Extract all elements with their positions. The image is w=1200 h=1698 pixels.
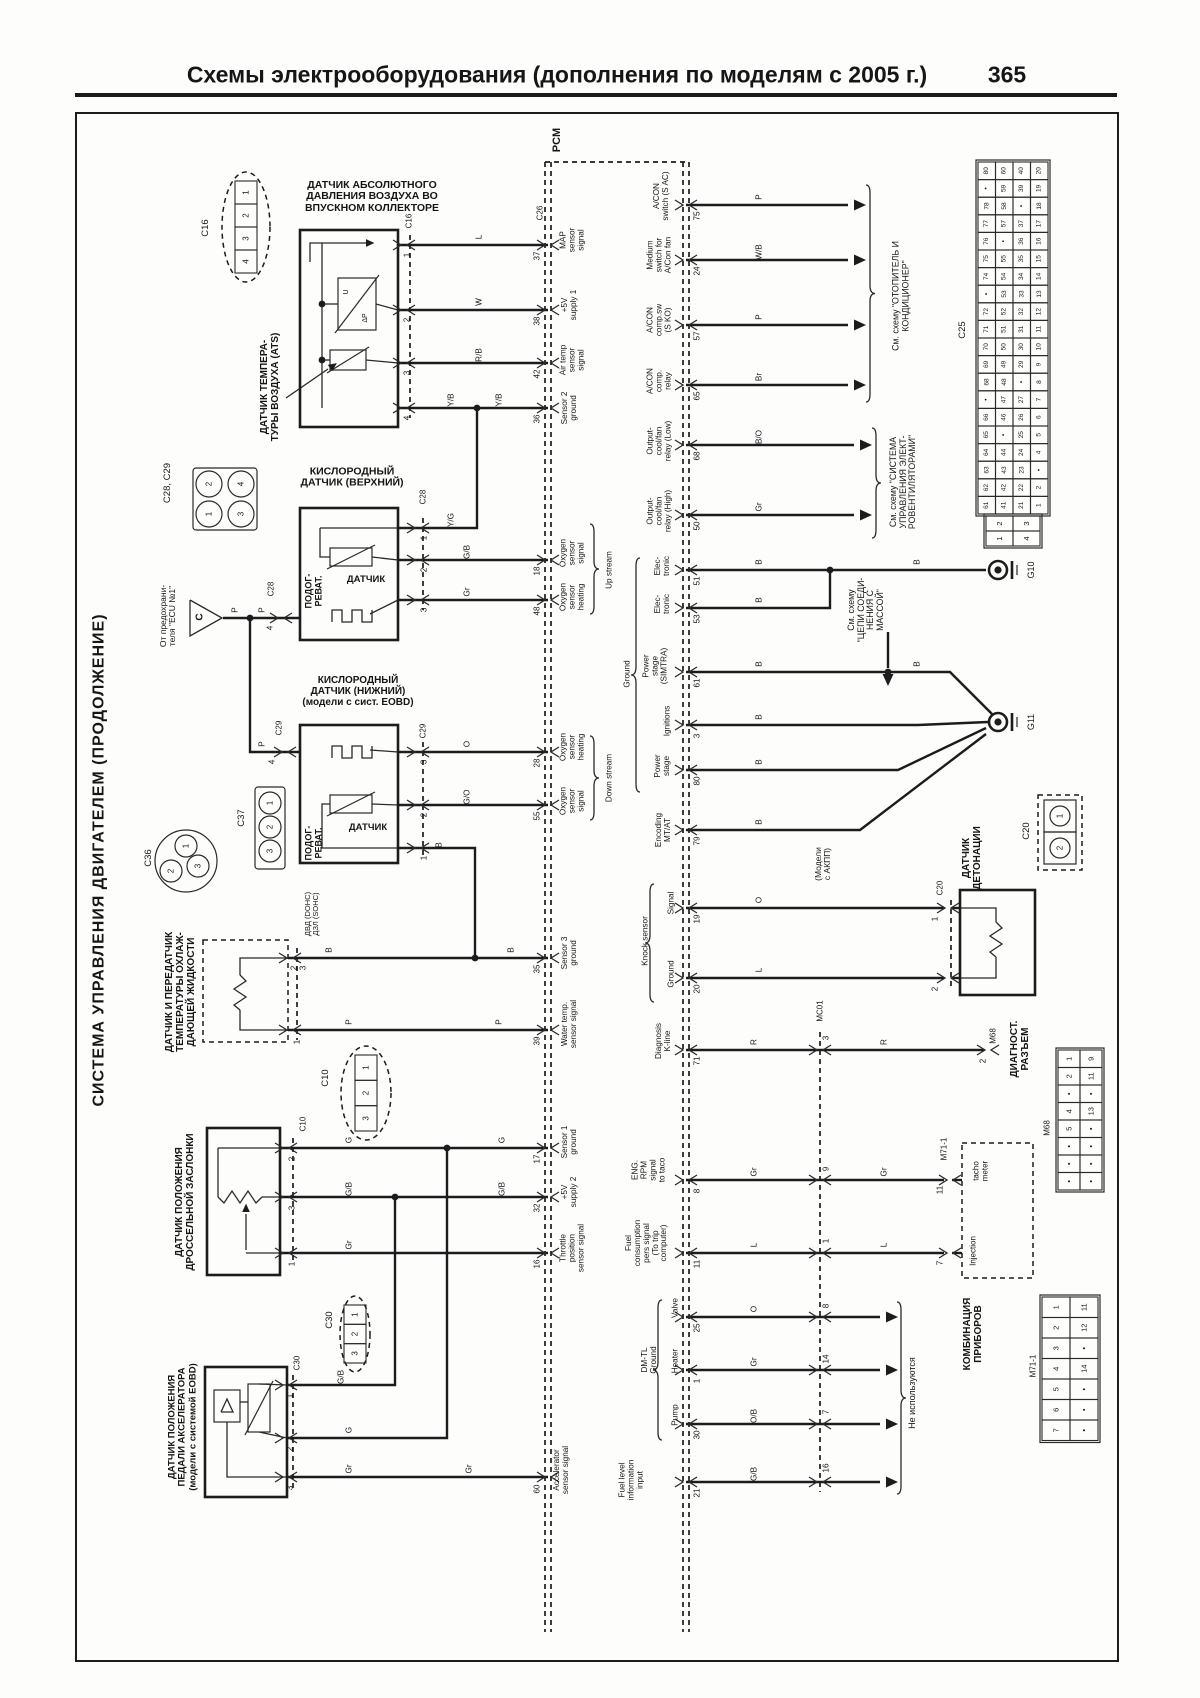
text-label: Water temp. sensor signal <box>561 1000 579 1048</box>
text-label: Gr <box>881 1167 890 1176</box>
c25-grid-pin: 78 <box>983 202 990 210</box>
flow-arrow <box>860 440 872 451</box>
wire-junction <box>474 405 481 412</box>
connector-chevron <box>551 1192 559 1202</box>
text-label: КИСЛОРОДНЫЙ ДАТЧИК (НИЖНИЙ) (модели с си… <box>302 676 413 708</box>
text-label: C16 <box>406 214 415 229</box>
text-label: 1 <box>287 1394 296 1399</box>
text-label: 8 <box>823 1304 832 1309</box>
c25-grid-pin: • <box>1001 433 1008 436</box>
text-label: W <box>476 298 485 306</box>
c25-grid-pin: 75 <box>983 255 990 263</box>
m71-1-grid-pin: 14 <box>1080 1365 1089 1373</box>
m68-grid-pin: • <box>1087 1180 1096 1183</box>
text-label: 25 <box>694 1323 703 1332</box>
text-label: L <box>881 1243 890 1248</box>
connector-chevron <box>551 1143 559 1153</box>
flow-arrow <box>854 200 866 211</box>
c36-connector-pin: 3 <box>194 863 203 868</box>
component-internal <box>240 1010 286 1030</box>
text-label: КОМБИНАЦИЯ ПРИБОРОВ <box>963 1298 985 1371</box>
text-label: 2 <box>980 1059 989 1064</box>
text-label: ДАТЧИК ТЕМПЕРА- ТУРЫ ВОЗДУХА (ATS) <box>260 333 282 442</box>
connector-chevron <box>675 1477 683 1487</box>
m68-grid-pin: • <box>1087 1162 1096 1165</box>
text-label: A/CON comp.sw (S KO) <box>647 304 674 336</box>
text-label: 3 <box>404 371 413 376</box>
text-label: 30 <box>694 1430 703 1439</box>
text-label: 4 <box>404 416 413 421</box>
text-label: 37 <box>534 252 543 261</box>
text-label: (Модели с АКПП) <box>814 847 832 881</box>
m71-1-grid-pin: 12 <box>1080 1324 1089 1332</box>
inner-part-slash <box>245 1381 273 1435</box>
component-internal <box>227 1422 287 1477</box>
wire-junction <box>885 669 892 676</box>
text-label: tacho meter <box>972 1161 989 1181</box>
c25-grid-pin: 35 <box>1018 255 1025 263</box>
wire-junction <box>247 615 254 622</box>
c25-grid-pin: 54 <box>1001 272 1008 280</box>
ground-icon-dot <box>994 566 1001 573</box>
text-label: R <box>751 1039 760 1045</box>
text-label: Gr <box>346 1240 355 1249</box>
c25-grid-pin: 8 <box>1036 380 1043 384</box>
text-label: Oxygen sensor heating <box>560 583 587 611</box>
c25-grid-pin: 29 <box>1018 360 1025 368</box>
flow-arrow <box>886 1365 898 1376</box>
m71-1-grid-pin: 6 <box>1052 1408 1061 1412</box>
c20-connector-pin: 2 <box>1056 845 1065 850</box>
text-label: 55 <box>534 812 543 821</box>
text-label: 38 <box>534 317 543 326</box>
text-label: Y/G <box>448 513 457 527</box>
text-label: G/B <box>338 1370 347 1384</box>
connector-chevron <box>675 440 683 450</box>
text-label: P <box>259 607 268 612</box>
text-label: Up stream <box>606 551 615 589</box>
text-label: 3 <box>421 608 430 613</box>
c25-grid-pin: 49 <box>1001 360 1008 368</box>
text-label: Sensor 3 ground <box>561 937 579 970</box>
c25-grid-pin: 15 <box>1036 255 1043 263</box>
m71-1-grid-pin: • <box>1080 1347 1089 1350</box>
text-label: 1 <box>294 1040 303 1045</box>
text-label: B <box>756 759 765 764</box>
wire <box>686 722 988 725</box>
m71-1-grid-pin: 11 <box>1080 1303 1089 1311</box>
c25-grid-pin: 24 <box>1018 448 1025 456</box>
flow-arrow <box>886 1419 898 1430</box>
connector-chevron <box>675 720 683 730</box>
connector-chevron <box>675 603 683 613</box>
text-label: B <box>756 819 765 824</box>
text-label: Gr <box>346 1464 355 1473</box>
text-label: 61 <box>694 678 703 687</box>
c25-grid-pin: 60 <box>1001 167 1008 175</box>
component-internal <box>332 746 372 758</box>
component-internal <box>310 243 366 262</box>
text-label: 3 <box>289 1206 298 1211</box>
c30-connector-pin: 3 <box>351 1351 360 1356</box>
c28-c29-connector-pin: 1 <box>205 511 214 516</box>
group-brace <box>866 185 875 402</box>
m71-1-grid-pin: • <box>1080 1408 1089 1411</box>
text-label: C28 <box>268 582 277 597</box>
text-label: Air temp sensor signal <box>560 345 587 375</box>
text-label: Pump <box>672 1404 681 1425</box>
text-label: 75 <box>694 211 703 220</box>
c25-grid-pin: 53 <box>1001 290 1008 298</box>
connector-chevron <box>675 255 683 265</box>
text-label: Medium switch for A/Con fan <box>647 237 674 273</box>
text-label: 1 <box>421 536 430 541</box>
text-label: 16 <box>823 1463 832 1472</box>
text-label: O <box>464 741 473 747</box>
text-label: Heater <box>672 1349 681 1374</box>
group-brace <box>590 524 599 614</box>
text-label: ДАТЧИК И ПЕРЕДАТЧИК ТЕМПЕРАТУРЫ ОХЛАЖ- Д… <box>165 932 197 1053</box>
text-label: B <box>914 559 923 564</box>
c25-grid-pin: • <box>983 292 990 295</box>
text-label: P <box>232 607 241 612</box>
connector-chevron <box>551 953 559 963</box>
text-label: G/B <box>346 1182 355 1196</box>
component-box <box>300 230 398 427</box>
c16-connector-pin: 4 <box>242 259 251 264</box>
c25-grid-pin: 70 <box>983 343 990 351</box>
c25-grid-pin: • <box>1018 204 1025 207</box>
text-label: Ignitions <box>664 706 673 737</box>
text-label: C16 <box>201 219 211 236</box>
text-label: Gr <box>751 1357 760 1366</box>
c25-grid-pin: 63 <box>983 466 990 474</box>
text-label: 4 <box>269 760 278 765</box>
text-label: Valve <box>672 1298 681 1318</box>
c25-grid-pin: 33 <box>1018 290 1025 298</box>
c25-grid-pin: 2 <box>1036 485 1043 489</box>
component-internal <box>234 975 246 1010</box>
wire <box>686 672 992 714</box>
text-label: 3 <box>300 966 309 971</box>
c25-grid-pin: 11 <box>1036 325 1043 332</box>
text-label: C26 <box>537 206 546 221</box>
text-label: 32 <box>534 1204 543 1213</box>
text-label: Oxygen sensor signal <box>560 539 587 567</box>
text-label: 11 <box>694 1260 703 1269</box>
connector-chevron <box>675 380 683 390</box>
inner-part-slash <box>335 275 379 333</box>
text-label: A/CON comp. relay <box>647 368 674 394</box>
text-label: Encoding MT/AT <box>655 813 673 847</box>
text-label: 1 <box>694 1379 703 1384</box>
c25-grid-pin: 12 <box>1036 308 1043 316</box>
connector-chevron <box>991 1045 999 1055</box>
text-label: ДВД (DOHC) ДЗЛ (SOHC) <box>304 892 320 936</box>
c25-grid-pin: 52 <box>1001 308 1008 316</box>
text-label: ДИАГНОСТ. РАЗЪЕМ <box>1010 1021 1032 1078</box>
text-label: 3 <box>823 1036 832 1041</box>
text-label: C29 <box>276 721 285 736</box>
c25-grid-pin: 6 <box>1036 415 1043 419</box>
text-label: См. схему "ЦЕПИ СОЕДИ- НЕНИЯ С МАССОЙ" <box>847 578 885 643</box>
c25-key-pin: 4 <box>1022 536 1031 540</box>
flow-arrow <box>860 510 872 521</box>
m68-grid-pin: 2 <box>1065 1074 1074 1078</box>
c25-grid-pin: 57 <box>1001 220 1008 228</box>
text-label: Output- cool/fan relay (Low) <box>647 421 674 462</box>
text-label: 20 <box>694 984 703 993</box>
c25-grid-pin: 25 <box>1018 431 1025 439</box>
wire-junction <box>472 955 479 962</box>
component-internal <box>218 1191 262 1203</box>
text-label: 14 <box>823 1354 832 1363</box>
text-label: 2 <box>287 1447 296 1452</box>
component-internal <box>372 804 398 805</box>
text-label: B <box>326 947 335 952</box>
text-label: L <box>476 235 485 240</box>
text-label: DM-TL Ground <box>641 1346 659 1373</box>
text-label: B <box>914 661 923 666</box>
text-label: 9 <box>823 1167 832 1172</box>
text-label: ДАТЧИК АБСОЛЮТНОГО ДАВЛЕНИЯ ВОЗДУХА ВО В… <box>305 180 439 214</box>
c25-grid-pin: 68 <box>983 378 990 386</box>
text-label: C20 <box>937 881 946 896</box>
component-internal <box>240 958 286 975</box>
connector-chevron <box>675 765 683 775</box>
c25-grid-pin: • <box>983 187 990 190</box>
text-label: A/CON switch (S AC) <box>653 171 671 220</box>
text-label: C29 <box>420 724 429 739</box>
text-label: B <box>508 947 517 952</box>
text-label: 68 <box>694 451 703 460</box>
c25-grid-pin: 61 <box>983 501 990 509</box>
connector-chevron <box>675 510 683 520</box>
connector-chevron <box>675 667 683 677</box>
connector-chevron <box>675 1175 683 1185</box>
text-label: ДАТЧИК ДЕТОНАЦИИ <box>962 826 984 890</box>
inner-part <box>214 1390 240 1422</box>
component-internal <box>960 957 996 978</box>
flow-arrow <box>886 1477 898 1488</box>
text-label: B <box>756 661 765 666</box>
text-label: КИСЛОРОДНЫЙ ДАТЧИК (ВЕРХНИЙ) <box>300 467 403 490</box>
text-label: PCM <box>552 128 564 152</box>
c10-connector-pin: 1 <box>362 1065 371 1070</box>
text-label: Gr <box>464 587 473 596</box>
text-label: 17 <box>534 1155 543 1164</box>
text-label: 7 <box>823 1410 832 1415</box>
text-label: Oxygen sensor heating <box>560 733 587 761</box>
text-label: G <box>499 1137 508 1143</box>
c25-grid-pin: • <box>1018 380 1025 383</box>
component-internal <box>320 528 330 557</box>
text-label: B <box>756 597 765 602</box>
text-label: C36 <box>144 849 154 866</box>
m71-1-grid-pin: 4 <box>1052 1367 1061 1371</box>
c25-grid-pin: • <box>983 398 990 401</box>
c25-grid-pin: 7 <box>1036 397 1043 401</box>
text-label: 2 <box>404 318 413 323</box>
wire <box>686 728 986 770</box>
component-internal <box>332 610 372 622</box>
text-label: Y/B <box>496 393 505 406</box>
c25-grid-pin: 66 <box>983 413 990 421</box>
c25-grid-pin: 74 <box>983 272 990 280</box>
text-label: 21 <box>694 1488 703 1497</box>
c25-grid-pin: 77 <box>983 220 990 228</box>
wire <box>398 408 477 528</box>
c25-grid-pin: 4 <box>1036 450 1043 454</box>
text-label: Injection <box>970 1236 979 1266</box>
text-label: 18 <box>534 567 543 576</box>
text-label: Power stage (SIMTRA) <box>643 648 670 684</box>
text-label: 7 <box>937 1261 946 1266</box>
text-label: O/B <box>751 1409 760 1423</box>
m68-grid-pin: 13 <box>1087 1107 1096 1115</box>
m68-grid-pin: 1 <box>1065 1057 1074 1061</box>
m71-1-grid-pin: • <box>1080 1429 1089 1432</box>
text-label: Fuel consumption pers signal (To trip co… <box>625 1220 669 1266</box>
text-label: G11 <box>1027 714 1037 730</box>
c36-connector-pin: 1 <box>182 843 191 848</box>
text-label: ПОДОГ- РЕВАТ. <box>304 826 323 861</box>
component-internal <box>960 908 996 922</box>
text-label: 2 <box>421 568 430 573</box>
c36-connector-pin: 2 <box>167 868 176 873</box>
text-label: 2 <box>289 1157 298 1162</box>
flow-arrow <box>883 674 894 686</box>
text-label: MC01 <box>817 1000 826 1021</box>
c25-grid-pin: 37 <box>1018 220 1025 228</box>
connector-chevron <box>675 1248 683 1258</box>
component-internal <box>376 304 398 310</box>
c25-key-pin: 2 <box>995 521 1004 525</box>
wire <box>287 1148 447 1438</box>
text-label: M68 <box>1044 1120 1053 1136</box>
component-internal <box>366 360 398 363</box>
text-label: ДАТЧИК <box>347 575 385 585</box>
text-label: Knock sensor <box>642 916 651 966</box>
text-label: C28 <box>420 490 429 505</box>
text-label: R/B <box>476 348 485 362</box>
wire-junction <box>444 1145 451 1152</box>
manual-page: Схемы электрооборудования (дополнения по… <box>0 0 1200 1698</box>
text-label: 71 <box>694 1056 703 1065</box>
c25-grid-pin: 10 <box>1036 343 1043 351</box>
m68-grid-pin: • <box>1065 1092 1074 1095</box>
m71-1-grid-pin: 2 <box>1052 1326 1061 1330</box>
text-label: ДАТЧИК ПОЛОЖЕНИЯ ДРОССЕЛЬНОЙ ЗАСЛОНКИ <box>175 1133 197 1270</box>
text-label: 57 <box>694 331 703 340</box>
text-label: G <box>346 1137 355 1143</box>
text-label: P <box>496 1019 505 1024</box>
text-label: 1 <box>823 1239 832 1244</box>
c25-grid-pin: 48 <box>1001 378 1008 386</box>
connector-chevron <box>551 403 559 413</box>
text-label: C <box>196 613 207 620</box>
dashed-box <box>203 940 288 1042</box>
component-internal <box>221 1399 233 1412</box>
c25-key-pin: 3 <box>1022 521 1031 525</box>
connector-chevron <box>675 565 683 575</box>
m71-1-grid-pin: • <box>1080 1388 1089 1391</box>
flow-arrow <box>854 320 866 331</box>
text-label: P <box>756 314 765 319</box>
c25-grid-pin: 46 <box>1001 413 1008 421</box>
m71-1-grid-pin: 5 <box>1052 1387 1061 1391</box>
m68-grid-pin: • <box>1065 1180 1074 1183</box>
wire-junction <box>319 357 326 364</box>
c25-grid-pin: 20 <box>1036 167 1043 175</box>
text-label: L <box>751 1243 760 1248</box>
c25-grid-pin: 32 <box>1018 308 1025 316</box>
text-label: 79 <box>694 836 703 845</box>
text-label: См. схему "СИСТЕМА УПРАВЛЕНИЯ ЭЛЕКТ- РОВ… <box>889 435 918 529</box>
text-label: B <box>756 714 765 719</box>
component-internal <box>372 557 398 560</box>
c16-connector-pin: 1 <box>242 190 251 195</box>
connector-chevron <box>551 305 559 315</box>
text-label: P <box>756 194 765 199</box>
text-label: G/B <box>751 1467 760 1481</box>
text-label: C10 <box>300 1117 309 1132</box>
text-label: C10 <box>321 1069 331 1086</box>
c25-grid-pin: 47 <box>1001 396 1008 404</box>
text-label: Gr <box>756 502 765 511</box>
text-label: 1 <box>289 1262 298 1267</box>
c25-grid-pin: 5 <box>1036 433 1043 437</box>
text-label: 39 <box>534 1037 543 1046</box>
text-label: 11 <box>937 1186 946 1195</box>
c16-connector-pin: 3 <box>242 236 251 241</box>
c25-grid-pin: • <box>1001 239 1008 242</box>
text-label: Oxygen sensor signal <box>560 787 587 815</box>
text-label: 50 <box>694 521 703 530</box>
text-label: Sensor 1 ground <box>561 1126 579 1159</box>
text-label: Accelerator sensor signal <box>553 1446 571 1494</box>
wire-junction <box>319 301 326 308</box>
text-label: ΔP <box>362 313 370 322</box>
wire <box>287 1197 395 1385</box>
c25-grid-pin: 69 <box>983 360 990 368</box>
c10-connector-pin: 3 <box>362 1116 371 1121</box>
text-label: C25 <box>958 321 968 338</box>
text-label: 2 <box>932 987 941 992</box>
c25-grid-pin: 13 <box>1036 290 1043 298</box>
c25-grid-pin: 1 <box>1036 503 1043 507</box>
text-label: Throttle position sensor signal <box>560 1224 587 1272</box>
c25-grid-pin: 71 <box>983 325 990 333</box>
text-label: 53 <box>694 614 703 623</box>
text-label: 19 <box>694 914 703 923</box>
wire-junction <box>392 1194 399 1201</box>
m68-grid-pin: • <box>1065 1145 1074 1148</box>
text-label: 42 <box>534 370 543 379</box>
text-label: G/B <box>499 1182 508 1196</box>
text-label: Sensor 2 ground <box>561 392 579 425</box>
text-label: +5V supply 2 <box>561 1177 579 1208</box>
c25-grid-pin: 40 <box>1018 167 1025 175</box>
text-label: Gr <box>466 1464 475 1473</box>
component-box <box>960 890 1035 995</box>
text-label: G10 <box>1027 561 1037 578</box>
component-internal <box>370 600 398 614</box>
connector-chevron <box>675 1045 683 1055</box>
text-label: Power stage <box>654 754 672 777</box>
flow-arrow <box>242 1204 250 1212</box>
connector-chevron <box>551 1025 559 1035</box>
